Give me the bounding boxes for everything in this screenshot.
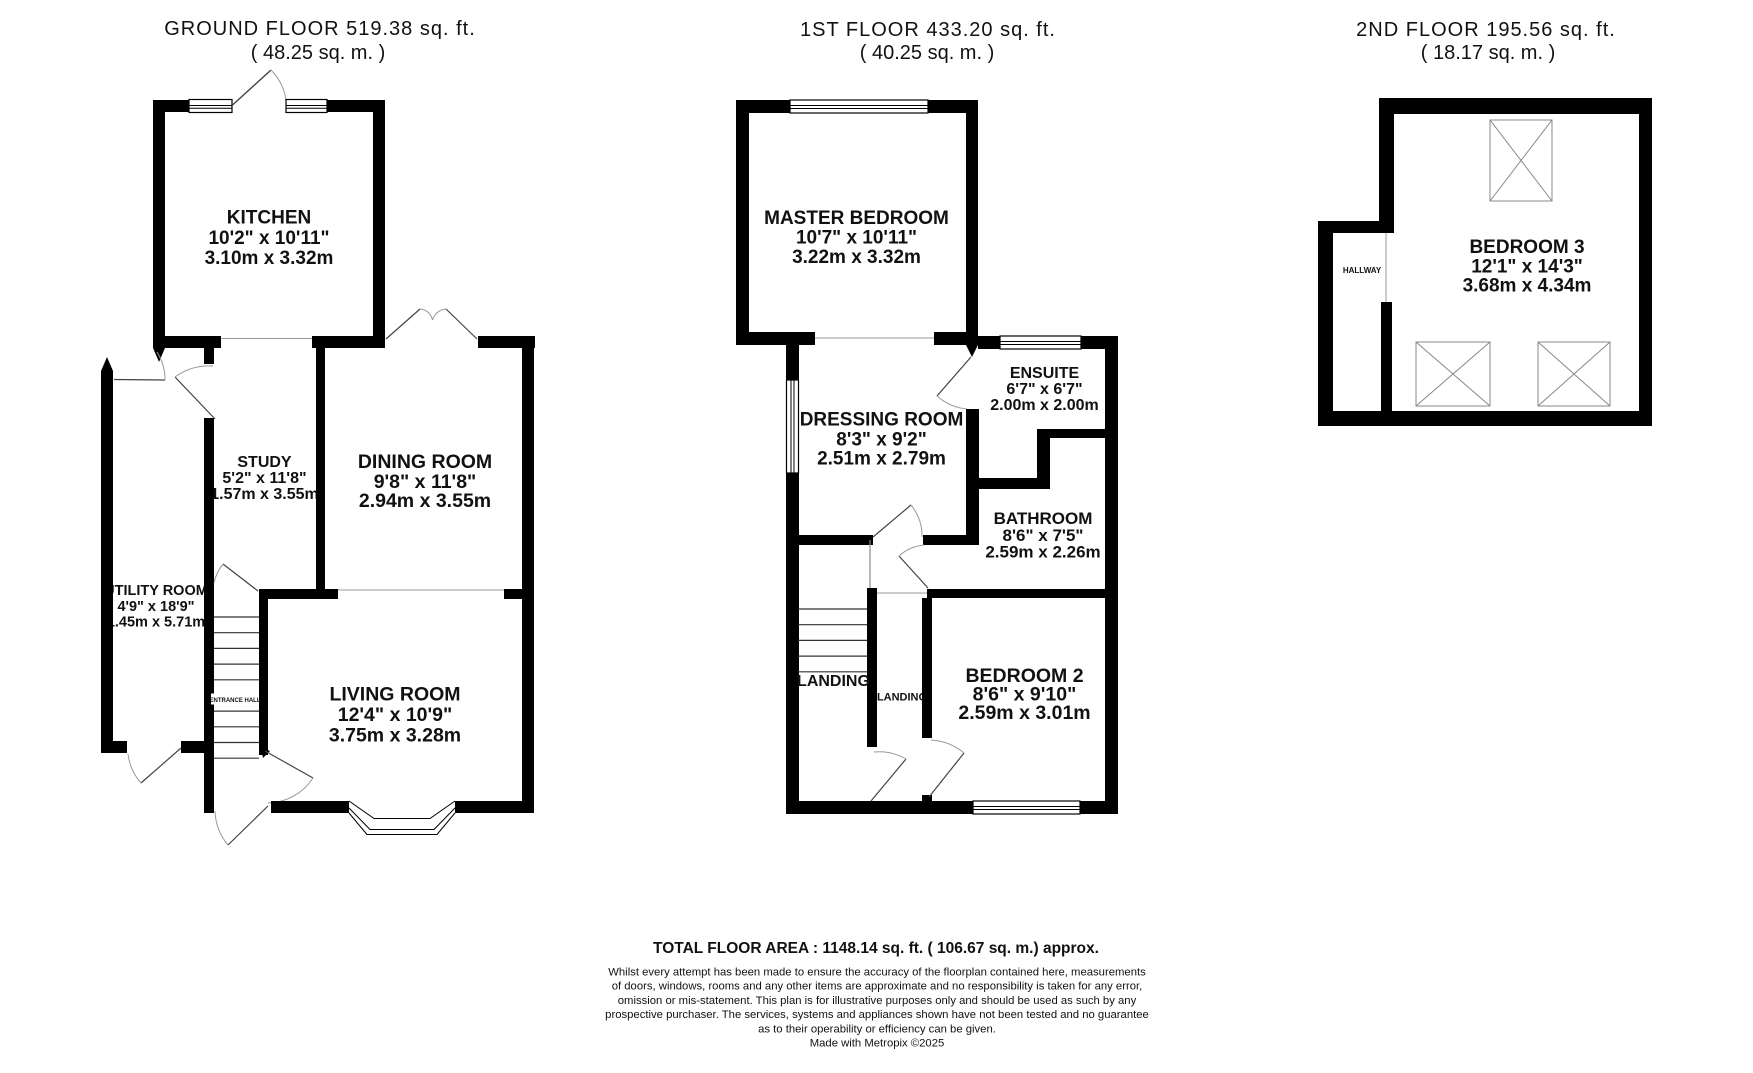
svg-text:1.57m x 3.55m: 1.57m x 3.55m (210, 486, 319, 503)
svg-text:LANDING: LANDING (877, 692, 927, 704)
svg-text:Whilst every attempt has been: Whilst every attempt has been made to en… (608, 967, 1146, 979)
svg-text:MASTER BEDROOM: MASTER BEDROOM (764, 208, 949, 229)
svg-text:GROUND FLOOR 519.38 sq. ft.: GROUND FLOOR 519.38 sq. ft. (164, 18, 476, 40)
svg-text:12'4" x 10'9": 12'4" x 10'9" (338, 704, 453, 726)
svg-text:BEDROOM 3: BEDROOM 3 (1469, 237, 1584, 258)
svg-text:1ST FLOOR 433.20 sq. ft.: 1ST FLOOR 433.20 sq. ft. (800, 19, 1056, 41)
svg-text:12'1" x 14'3": 12'1" x 14'3" (1471, 256, 1583, 277)
svg-text:3.22m x 3.32m: 3.22m x 3.32m (792, 247, 921, 268)
svg-text:DINING ROOM: DINING ROOM (358, 451, 492, 473)
svg-text:10'2" x 10'11": 10'2" x 10'11" (208, 228, 329, 249)
svg-text:3.68m x 4.34m: 3.68m x 4.34m (1463, 276, 1592, 297)
svg-text:ENTRANCE HALL: ENTRANCE HALL (210, 698, 261, 704)
svg-text:of doors, windows, rooms and a: of doors, windows, rooms and any other i… (612, 981, 1143, 993)
svg-text:UTILITY ROOM: UTILITY ROOM (104, 583, 208, 599)
svg-text:6'7" x 6'7": 6'7" x 6'7" (1006, 381, 1082, 398)
svg-text:STUDY: STUDY (237, 454, 292, 471)
svg-text:DRESSING ROOM: DRESSING ROOM (800, 410, 964, 431)
svg-text:( 48.25 sq. m. ): ( 48.25 sq. m. ) (251, 42, 386, 64)
svg-text:( 18.17 sq. m. ): ( 18.17 sq. m. ) (1421, 42, 1556, 64)
svg-text:TOTAL FLOOR AREA : 1148.14 sq.: TOTAL FLOOR AREA : 1148.14 sq. ft. ( 106… (653, 940, 1099, 957)
svg-text:2ND FLOOR 195.56 sq. ft.: 2ND FLOOR 195.56 sq. ft. (1356, 19, 1616, 41)
svg-text:( 40.25 sq. m. ): ( 40.25 sq. m. ) (860, 42, 995, 64)
svg-text:prospective purchaser. The ser: prospective purchaser. The services, sys… (605, 1009, 1149, 1021)
svg-text:3.10m x 3.32m: 3.10m x 3.32m (205, 248, 334, 269)
svg-text:8'3" x 9'2": 8'3" x 9'2" (836, 430, 926, 451)
svg-text:ENSUITE: ENSUITE (1010, 365, 1080, 382)
svg-text:3.75m x 3.28m: 3.75m x 3.28m (329, 725, 461, 747)
svg-text:2.51m x 2.79m: 2.51m x 2.79m (817, 449, 946, 470)
svg-text:10'7" x 10'11": 10'7" x 10'11" (796, 228, 917, 249)
svg-text:2.59m x 2.26m: 2.59m x 2.26m (985, 543, 1100, 562)
svg-text:omission or mis-statement. Thi: omission or mis-statement. This plan is … (618, 995, 1137, 1007)
svg-text:as to their operability or eff: as to their operability or efficiency ca… (758, 1023, 996, 1035)
svg-text:4'9" x 18'9": 4'9" x 18'9" (117, 599, 194, 615)
svg-text:HALLWAY: HALLWAY (1343, 266, 1382, 275)
svg-text:KITCHEN: KITCHEN (227, 208, 311, 229)
svg-text:LIVING ROOM: LIVING ROOM (329, 684, 460, 706)
svg-text:5'2" x 11'8": 5'2" x 11'8" (222, 470, 306, 487)
svg-text:LANDING: LANDING (797, 673, 870, 690)
svg-text:Made with Metropix ©2025: Made with Metropix ©2025 (810, 1038, 945, 1050)
svg-text:2.00m x 2.00m: 2.00m x 2.00m (990, 397, 1099, 414)
svg-text:2.94m x 3.55m: 2.94m x 3.55m (359, 490, 491, 512)
svg-text:2.59m x 3.01m: 2.59m x 3.01m (958, 702, 1090, 724)
svg-text:1.45m x 5.71m: 1.45m x 5.71m (107, 615, 205, 631)
